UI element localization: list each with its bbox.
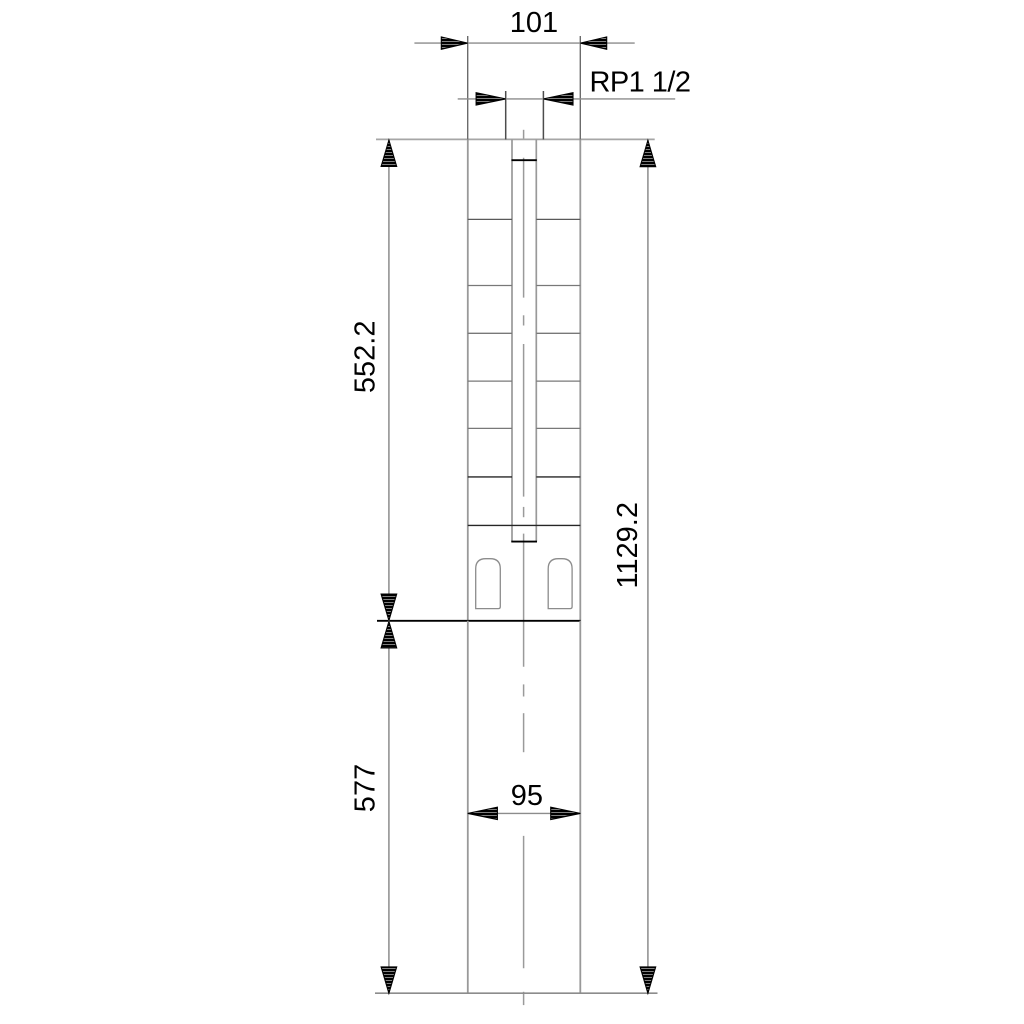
svg-text:95: 95 — [511, 780, 543, 812]
svg-text:552.2: 552.2 — [349, 321, 381, 394]
svg-text:1129.2: 1129.2 — [612, 502, 644, 589]
svg-text:101: 101 — [510, 7, 558, 39]
svg-text:577: 577 — [349, 764, 381, 812]
svg-text:RP1 1/2: RP1 1/2 — [590, 66, 691, 98]
